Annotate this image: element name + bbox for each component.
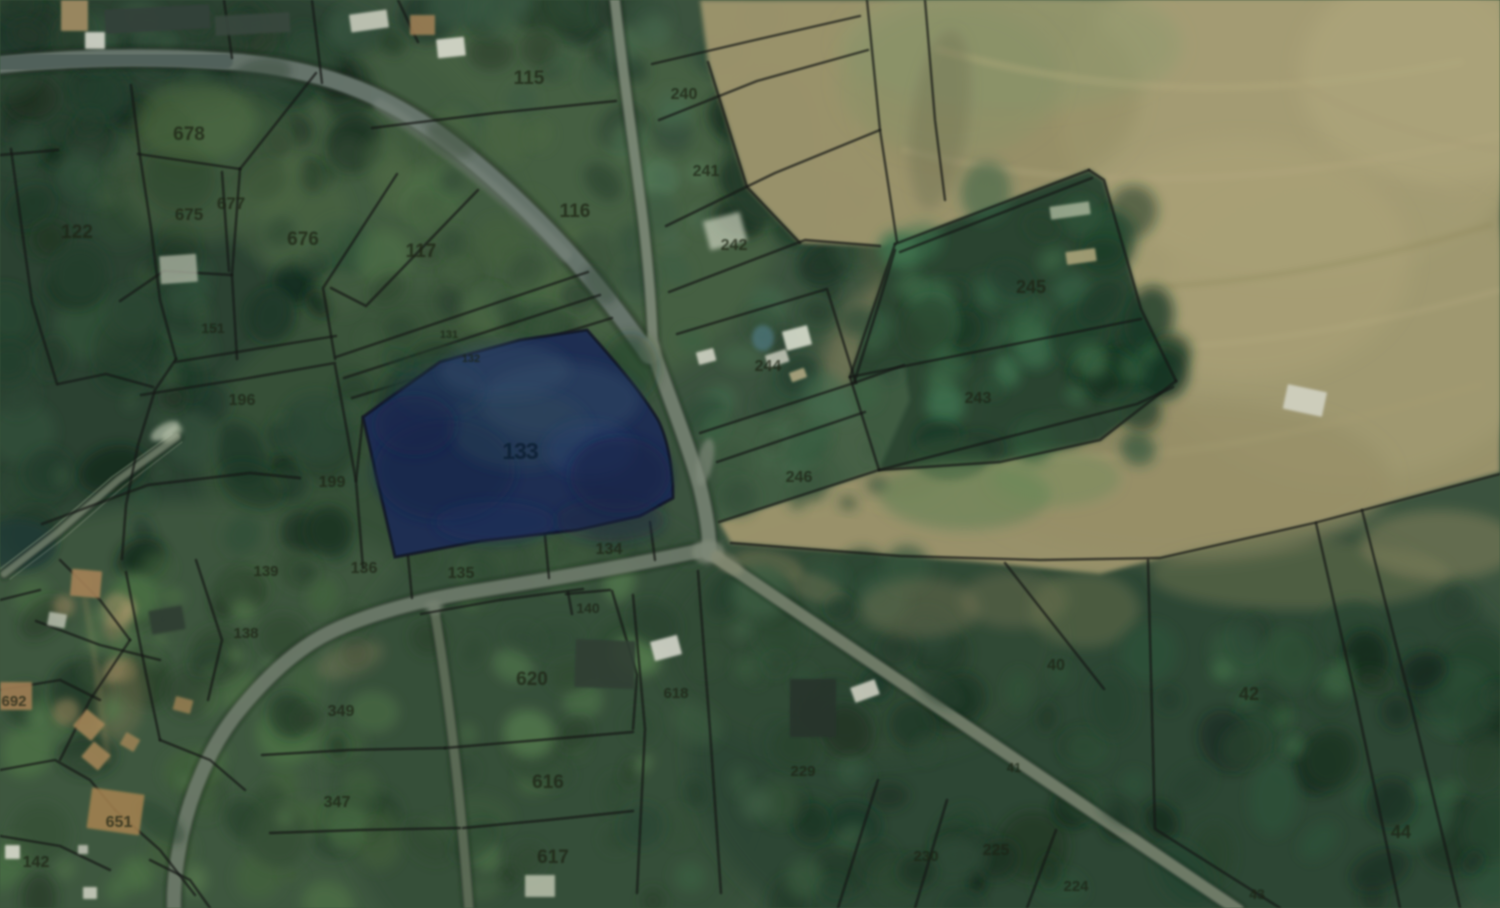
svg-text:224: 224 [1063, 878, 1089, 895]
svg-text:347: 347 [324, 794, 351, 811]
svg-text:133: 133 [502, 438, 538, 464]
svg-text:132: 132 [462, 353, 480, 365]
svg-text:692: 692 [1, 693, 26, 710]
svg-text:241: 241 [693, 163, 720, 180]
svg-text:138: 138 [233, 625, 258, 642]
svg-text:135: 135 [448, 565, 475, 582]
svg-text:678: 678 [173, 124, 205, 145]
svg-text:43: 43 [1249, 886, 1265, 902]
svg-text:139: 139 [253, 563, 278, 580]
svg-text:42: 42 [1239, 684, 1259, 704]
svg-text:620: 620 [516, 669, 548, 690]
svg-text:245: 245 [1016, 277, 1046, 297]
svg-text:244: 244 [755, 358, 782, 375]
svg-text:115: 115 [514, 68, 545, 89]
svg-text:196: 196 [229, 392, 256, 409]
svg-text:240: 240 [671, 86, 698, 103]
svg-text:117: 117 [406, 241, 437, 262]
svg-text:617: 617 [537, 847, 569, 868]
svg-text:199: 199 [319, 474, 346, 491]
svg-text:677: 677 [217, 194, 245, 213]
svg-text:142: 142 [23, 854, 50, 871]
svg-text:230: 230 [913, 848, 938, 865]
svg-text:225: 225 [983, 842, 1010, 859]
svg-text:116: 116 [560, 201, 591, 222]
svg-text:131: 131 [440, 329, 458, 341]
svg-text:651: 651 [106, 814, 133, 831]
svg-text:246: 246 [786, 469, 813, 486]
svg-text:136: 136 [351, 560, 378, 577]
svg-text:675: 675 [175, 205, 203, 224]
svg-text:40: 40 [1047, 657, 1065, 674]
svg-text:242: 242 [721, 237, 748, 254]
svg-text:151: 151 [201, 320, 225, 336]
svg-text:41: 41 [1007, 760, 1021, 775]
svg-text:134: 134 [596, 541, 623, 558]
svg-text:122: 122 [61, 222, 93, 243]
svg-text:616: 616 [532, 772, 564, 793]
svg-text:349: 349 [328, 703, 355, 720]
svg-text:676: 676 [287, 229, 319, 250]
svg-text:44: 44 [1391, 822, 1411, 842]
svg-text:243: 243 [965, 390, 992, 407]
svg-text:140: 140 [576, 600, 600, 616]
svg-text:618: 618 [663, 685, 688, 702]
svg-text:229: 229 [790, 763, 815, 780]
